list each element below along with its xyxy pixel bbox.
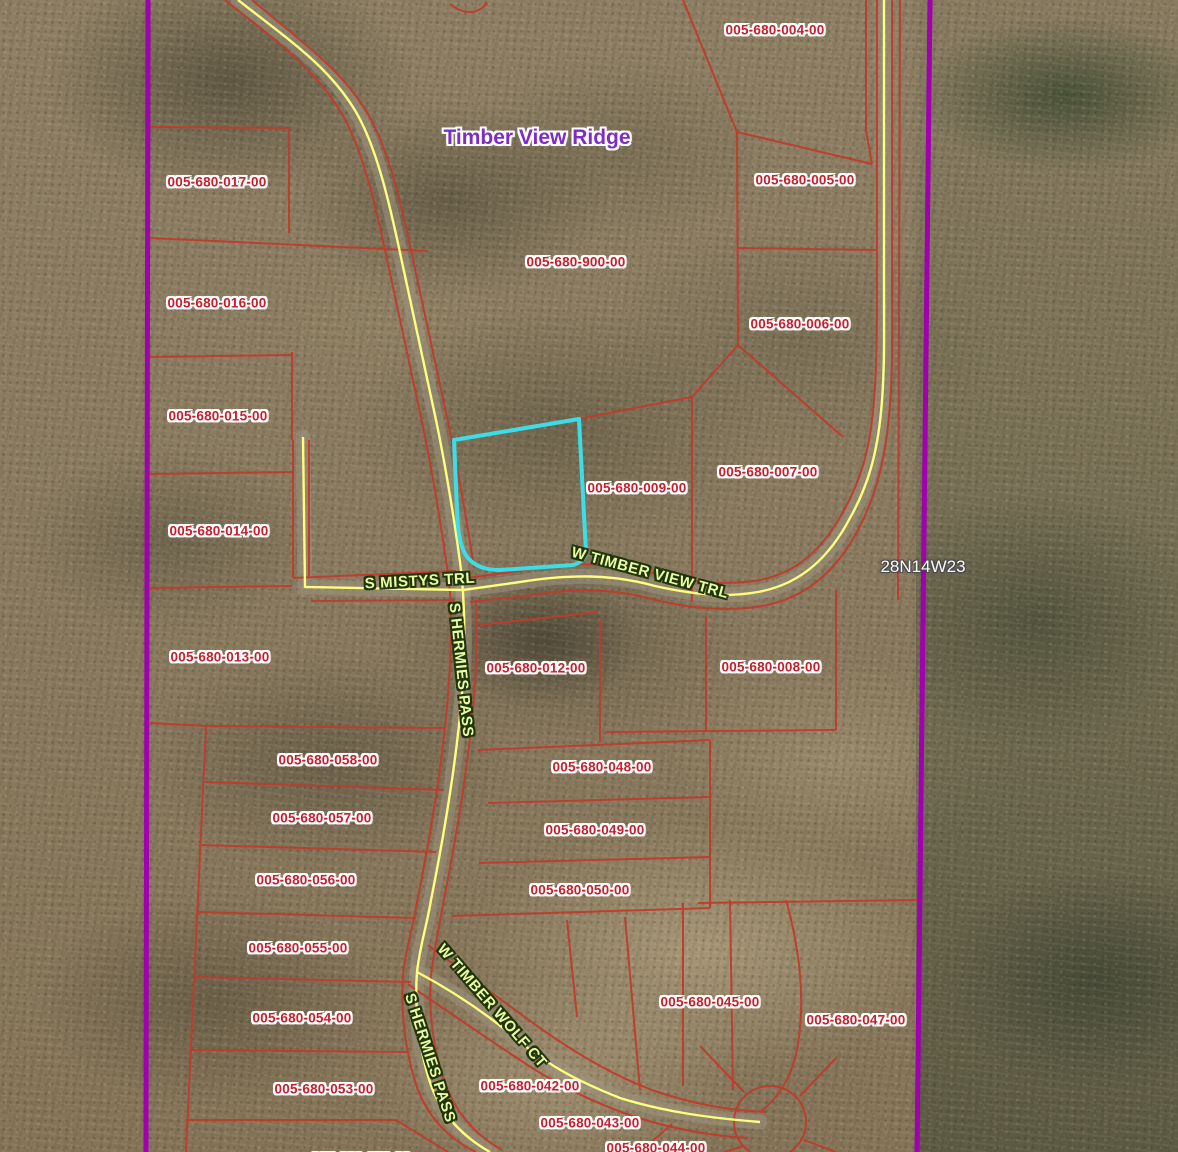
parcel-label[interactable]: 005-680-014-00	[170, 524, 269, 539]
section-township-label: 28N14W23	[880, 557, 965, 577]
parcel-label[interactable]: 005-680-007-00	[719, 465, 818, 480]
parcel-label[interactable]: 005-680-006-00	[751, 317, 850, 332]
road-name-label: S HERMIES PASS	[445, 602, 476, 738]
parcel-label[interactable]: 005-680-056-00	[257, 873, 356, 888]
parcel-label[interactable]: 005-680-048-00	[553, 760, 652, 775]
parcel-label[interactable]: 005-680-012-00	[487, 661, 586, 676]
parcel-label[interactable]: 005-680-058-00	[279, 753, 378, 768]
road-name-label: W TIMBER WOLF CT	[434, 941, 550, 1071]
parcel-label[interactable]: 005-680-900-00	[527, 255, 626, 270]
subdivision-name-label: Timber View Ridge	[443, 126, 630, 150]
parcel-label[interactable]: 005-680-017-00	[168, 175, 267, 190]
parcel-label[interactable]: 005-680-043-00	[541, 1116, 640, 1131]
parcel-label[interactable]: 005-680-009-00	[588, 481, 687, 496]
road-name-label: W TIMBER VIEW TRL	[570, 544, 731, 602]
parcel-label[interactable]: 005-680-008-00	[722, 660, 821, 675]
road-name-label: S HERMIES PASS	[401, 991, 459, 1124]
parcel-label[interactable]: 005-680-004-00	[726, 23, 825, 38]
parcel-label[interactable]: 005-680-013-00	[171, 650, 270, 665]
parcel-label[interactable]: 005-680-042-00	[481, 1079, 580, 1094]
road-name-label: S MISTYS TRL	[364, 570, 475, 593]
parcel-map[interactable]: Timber View Ridge 28N14W23 005-680-004-0…	[0, 0, 1178, 1152]
parcel-label[interactable]: 005-680-055-00	[249, 941, 348, 956]
parcel-label[interactable]: 005-680-047-00	[807, 1013, 906, 1028]
parcel-label[interactable]: 005-680-015-00	[169, 409, 268, 424]
labels-layer: Timber View Ridge 28N14W23 005-680-004-0…	[0, 0, 1178, 1152]
parcel-label[interactable]: 005-680-049-00	[546, 823, 645, 838]
parcel-label[interactable]: 005-680-054-00	[253, 1011, 352, 1026]
parcel-label[interactable]: 005-680-053-00	[275, 1082, 374, 1097]
parcel-label[interactable]: 005-680-057-00	[273, 811, 372, 826]
parcel-label[interactable]: 005-680-050-00	[531, 883, 630, 898]
parcel-label[interactable]: 005-680-044-00	[607, 1141, 706, 1152]
parcel-label[interactable]: 005-680-016-00	[168, 296, 267, 311]
parcel-label[interactable]: 005-680-045-00	[661, 995, 760, 1010]
parcel-label[interactable]: 005-680-005-00	[756, 173, 855, 188]
